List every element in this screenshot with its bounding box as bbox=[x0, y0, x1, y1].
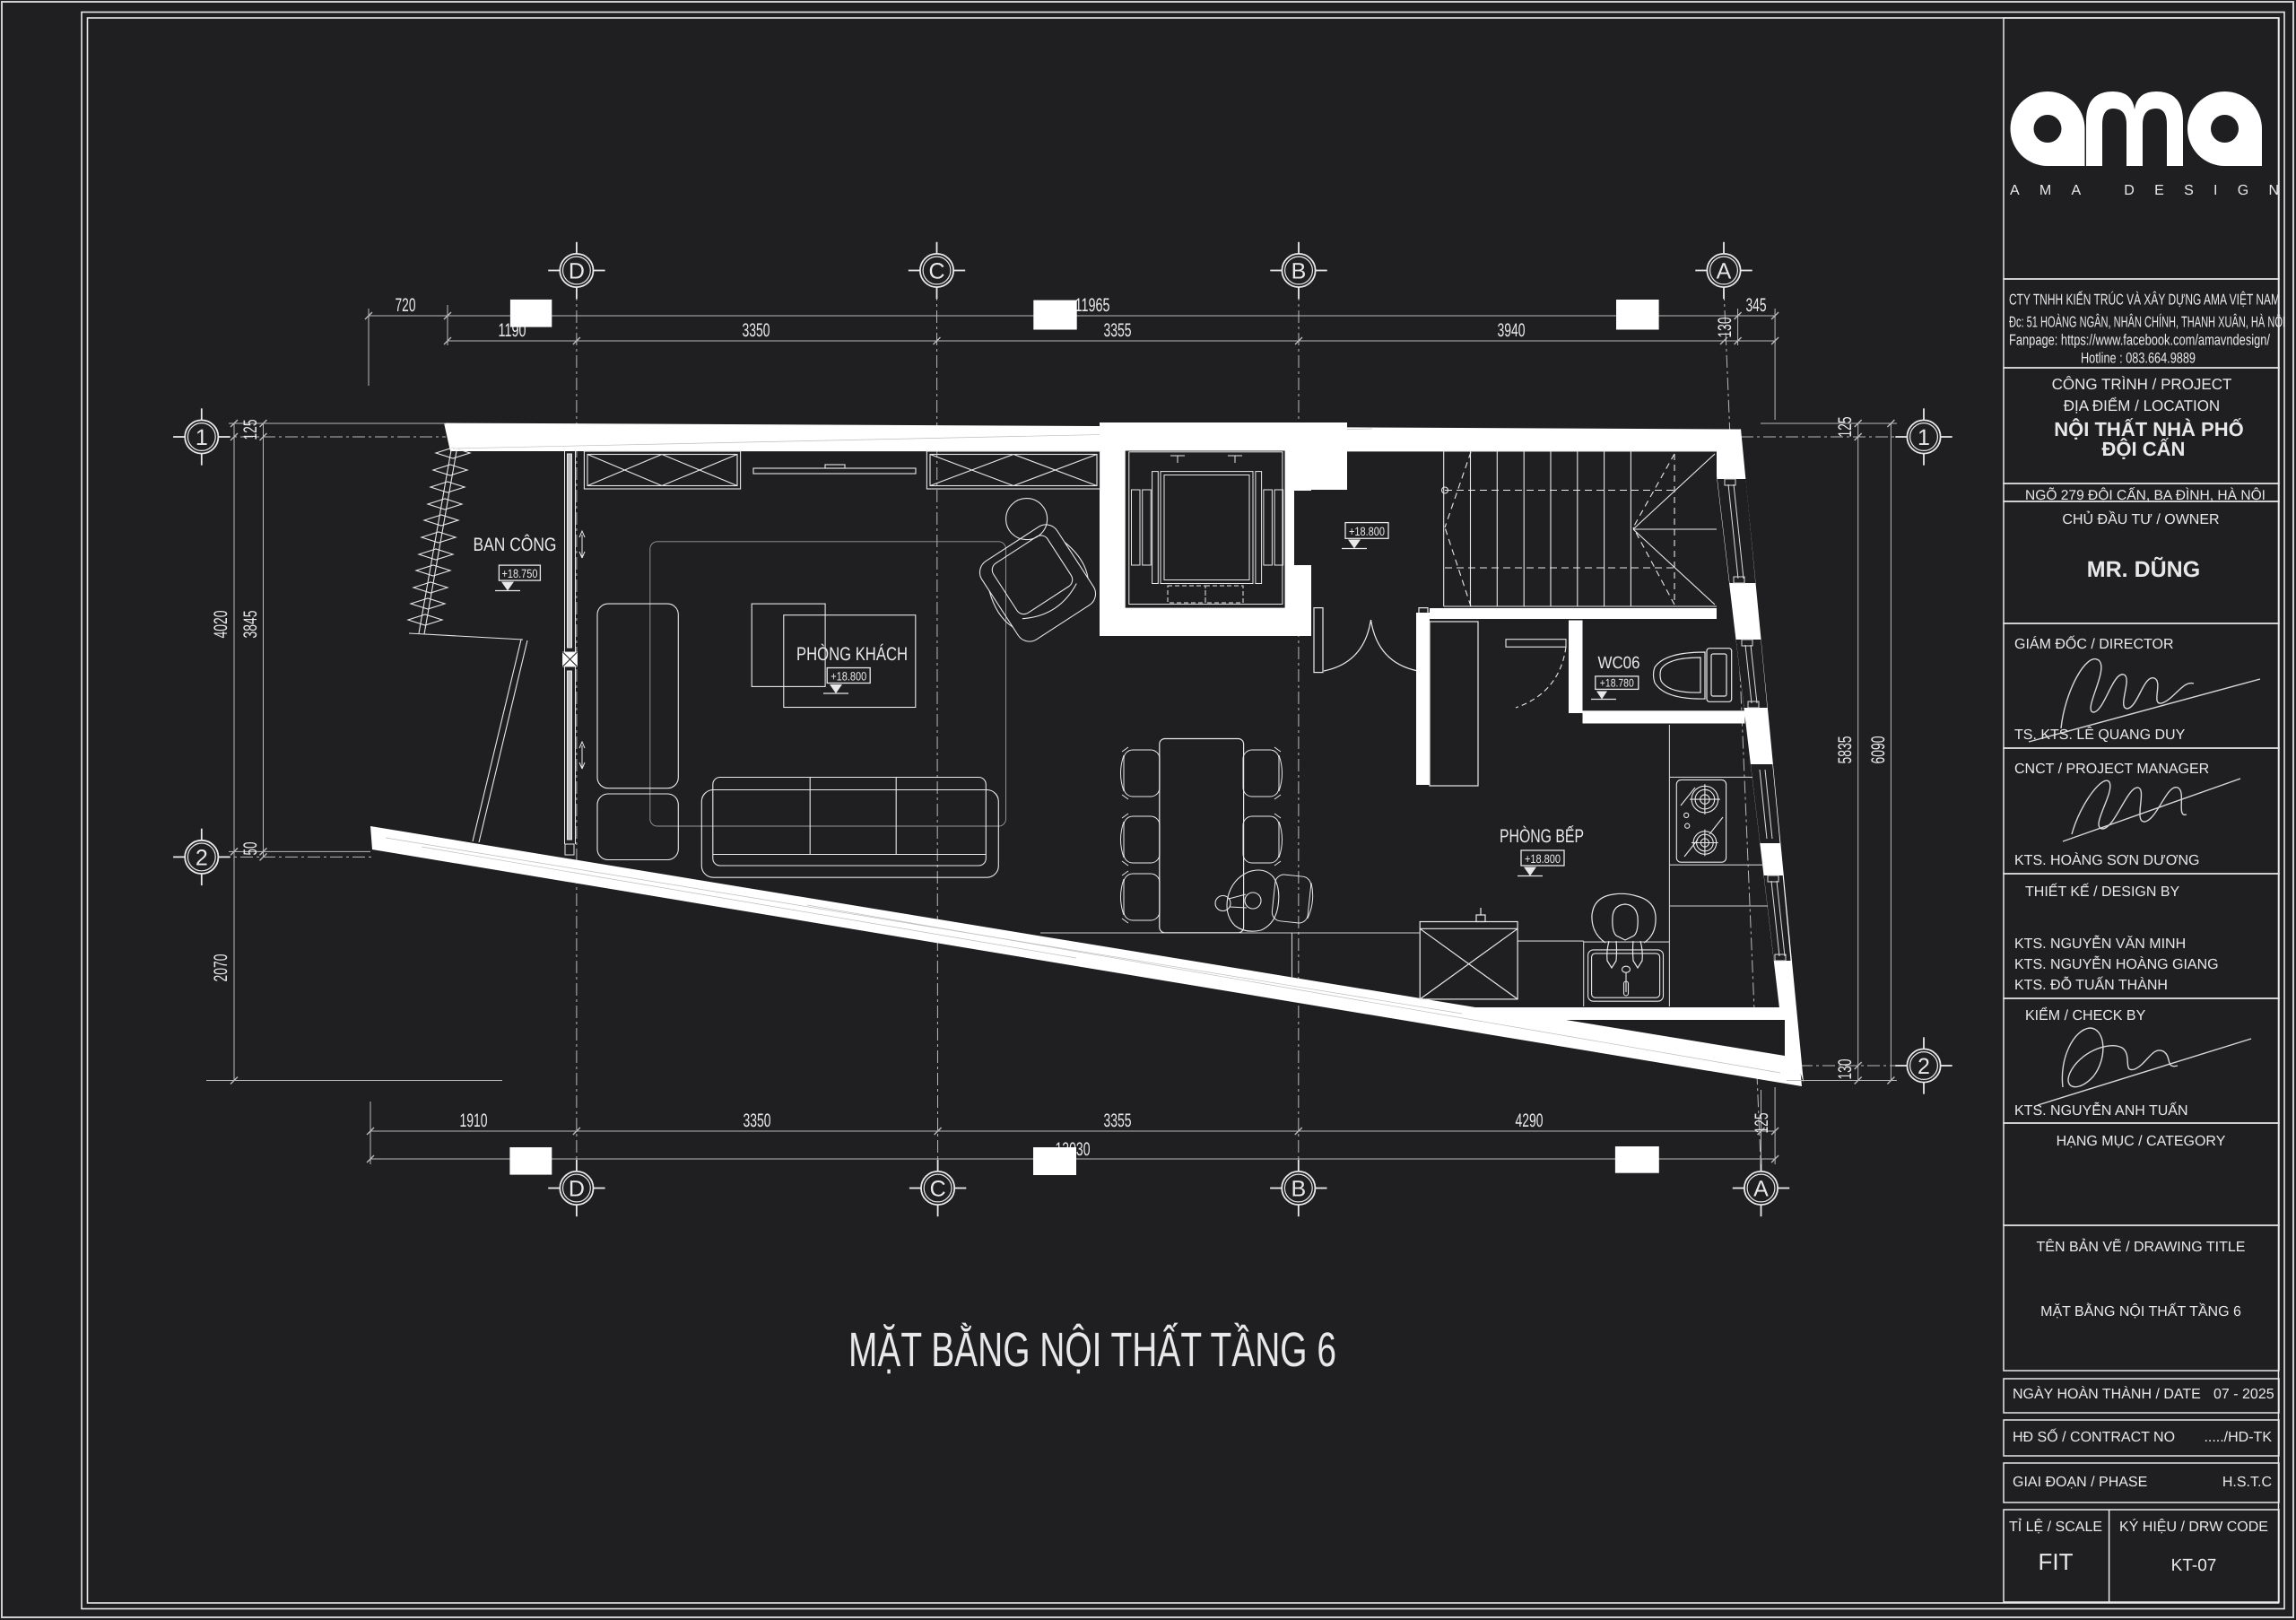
svg-text:3845: 3845 bbox=[240, 611, 261, 639]
svg-text:PHÒNG KHÁCH: PHÒNG KHÁCH bbox=[796, 643, 908, 665]
svg-text:2: 2 bbox=[1918, 1054, 1930, 1079]
svg-text:125: 125 bbox=[1835, 417, 1856, 438]
svg-text:C: C bbox=[930, 1177, 946, 1202]
svg-text:GIÁM ĐỐC / DIRECTOR: GIÁM ĐỐC / DIRECTOR bbox=[2014, 635, 2174, 652]
svg-text:4290: 4290 bbox=[1516, 1110, 1544, 1131]
svg-text:...../HD-TK: ...../HD-TK bbox=[2204, 1430, 2272, 1445]
svg-text:H.S.T.C: H.S.T.C bbox=[2222, 1475, 2272, 1490]
svg-text:KÝ HIỆU / DRW CODE: KÝ HIỆU / DRW CODE bbox=[2119, 1519, 2268, 1535]
svg-text:125: 125 bbox=[1752, 1113, 1772, 1134]
svg-text:720: 720 bbox=[396, 295, 416, 316]
svg-text:TS. KTS. LÊ QUANG DUY: TS. KTS. LÊ QUANG DUY bbox=[2014, 727, 2186, 743]
svg-text:MẶT BẰNG NỘI THẤT TẦNG 6: MẶT BẰNG NỘI THẤT TẦNG 6 bbox=[2040, 1302, 2241, 1320]
svg-text:5835: 5835 bbox=[1835, 736, 1856, 764]
svg-text:TÊN BẢN VẼ / DRAWING TITLE: TÊN BẢN VẼ / DRAWING TITLE bbox=[2037, 1238, 2246, 1255]
svg-text:1: 1 bbox=[196, 425, 208, 450]
svg-text:1: 1 bbox=[1918, 425, 1930, 450]
svg-text:3350: 3350 bbox=[744, 1110, 771, 1131]
svg-text:07 - 2025: 07 - 2025 bbox=[2213, 1387, 2274, 1402]
svg-text:130: 130 bbox=[1715, 318, 1735, 338]
svg-text:KIỂM / CHECK BY: KIỂM / CHECK BY bbox=[2025, 1006, 2146, 1023]
svg-text:D: D bbox=[569, 1177, 585, 1202]
svg-text:125: 125 bbox=[240, 420, 261, 440]
svg-text:C: C bbox=[928, 259, 944, 284]
svg-text:Đc: 51 HOÀNG NGÂN, NHÂN CHÍNH,: Đc: 51 HOÀNG NGÂN, NHÂN CHÍNH, THANH XUÂ… bbox=[2009, 314, 2285, 331]
svg-text:+18.800: +18.800 bbox=[831, 669, 866, 683]
svg-text:TỈ LỆ / SCALE: TỈ LỆ / SCALE bbox=[2009, 1518, 2102, 1535]
svg-text:ĐỊA ĐIỂM / LOCATION: ĐỊA ĐIỂM / LOCATION bbox=[2064, 396, 2220, 414]
svg-text:CTY TNHH KIẾN TRÚC VÀ XÂY DỰNG: CTY TNHH KIẾN TRÚC VÀ XÂY DỰNG AMA VIỆT … bbox=[2009, 291, 2280, 309]
svg-text:KTS. ĐỖ TUẤN THÀNH: KTS. ĐỖ TUẤN THÀNH bbox=[2014, 976, 2168, 993]
svg-text:CNCT / PROJECT MANAGER: CNCT / PROJECT MANAGER bbox=[2014, 762, 2209, 777]
svg-text:3355: 3355 bbox=[1104, 1110, 1132, 1131]
svg-text:HĐ SỐ / CONTRACT NO: HĐ SỐ / CONTRACT NO bbox=[2013, 1428, 2175, 1445]
svg-text:HẠNG MỤC / CATEGORY: HẠNG MỤC / CATEGORY bbox=[2057, 1134, 2226, 1149]
svg-text:BAN CÔNG: BAN CÔNG bbox=[474, 534, 557, 555]
svg-text:2070: 2070 bbox=[211, 954, 231, 982]
svg-text:A: A bbox=[1753, 1177, 1769, 1202]
svg-text:+18.800: +18.800 bbox=[1349, 525, 1385, 538]
svg-text:FIT: FIT bbox=[2039, 1548, 2074, 1575]
svg-text:KTS. NGUYỄN VĂN MINH: KTS. NGUYỄN VĂN MINH bbox=[2014, 935, 2186, 952]
svg-text:345: 345 bbox=[1746, 295, 1767, 316]
svg-text:THIẾT KẾ / DESIGN BY: THIẾT KẾ / DESIGN BY bbox=[2025, 883, 2180, 900]
svg-text:Fanpage: https://www.facebook.: Fanpage: https://www.facebook.com/amavnd… bbox=[2009, 332, 2270, 349]
svg-text:2: 2 bbox=[196, 845, 208, 870]
svg-text:1910: 1910 bbox=[460, 1110, 488, 1131]
svg-text:6090: 6090 bbox=[1868, 736, 1889, 764]
svg-text:KTS. HOÀNG SƠN DƯƠNG: KTS. HOÀNG SƠN DƯƠNG bbox=[2014, 852, 2199, 868]
svg-text:KTS. NGUYỄN HOÀNG GIANG: KTS. NGUYỄN HOÀNG GIANG bbox=[2014, 955, 2219, 972]
svg-text:NGÀY HOÀN THÀNH / DATE: NGÀY HOÀN THÀNH / DATE bbox=[2013, 1386, 2201, 1402]
svg-text:11965: 11965 bbox=[1075, 295, 1110, 316]
svg-text:CHỦ ĐẦU TƯ / OWNER: CHỦ ĐẦU TƯ / OWNER bbox=[2062, 510, 2219, 527]
svg-text:MẶT BẰNG NỘI THẤT TẦNG 6: MẶT BẰNG NỘI THẤT TẦNG 6 bbox=[848, 1322, 1336, 1377]
svg-text:50: 50 bbox=[240, 842, 261, 856]
svg-text:3355: 3355 bbox=[1104, 320, 1132, 341]
svg-text:ĐỘI CẤN: ĐỘI CẤN bbox=[2102, 438, 2186, 460]
svg-text:+18.780: +18.780 bbox=[1600, 677, 1634, 690]
svg-text:NGÕ 279 ĐỘI CẤN, BA ĐÌNH, HÀ N: NGÕ 279 ĐỘI CẤN, BA ĐÌNH, HÀ NỘI bbox=[2025, 487, 2266, 503]
svg-text:Hotline : 083.664.9889: Hotline : 083.664.9889 bbox=[2081, 351, 2196, 367]
svg-text:+18.750: +18.750 bbox=[502, 567, 538, 580]
svg-text:3940: 3940 bbox=[1498, 320, 1526, 341]
svg-text:KT-07: KT-07 bbox=[2171, 1556, 2217, 1575]
svg-text:+18.800: +18.800 bbox=[1525, 852, 1561, 866]
svg-text:3350: 3350 bbox=[743, 320, 770, 341]
svg-text:A: A bbox=[1717, 259, 1732, 284]
svg-text:D: D bbox=[569, 259, 585, 284]
svg-text:MR. DŨNG: MR. DŨNG bbox=[2087, 556, 2200, 582]
svg-text:4020: 4020 bbox=[211, 611, 231, 639]
svg-text:GIAI ĐOẠN / PHASE: GIAI ĐOẠN / PHASE bbox=[2013, 1475, 2147, 1490]
svg-text:B: B bbox=[1291, 1177, 1306, 1202]
svg-text:B: B bbox=[1291, 259, 1307, 284]
svg-text:KTS. NGUYỄN ANH TUẤN: KTS. NGUYỄN ANH TUẤN bbox=[2014, 1102, 2188, 1119]
svg-text:WC06: WC06 bbox=[1598, 654, 1640, 673]
svg-text:CÔNG TRÌNH / PROJECT: CÔNG TRÌNH / PROJECT bbox=[2052, 376, 2232, 393]
svg-text:PHÒNG BẾP: PHÒNG BẾP bbox=[1500, 825, 1584, 847]
svg-text:130: 130 bbox=[1835, 1059, 1856, 1080]
